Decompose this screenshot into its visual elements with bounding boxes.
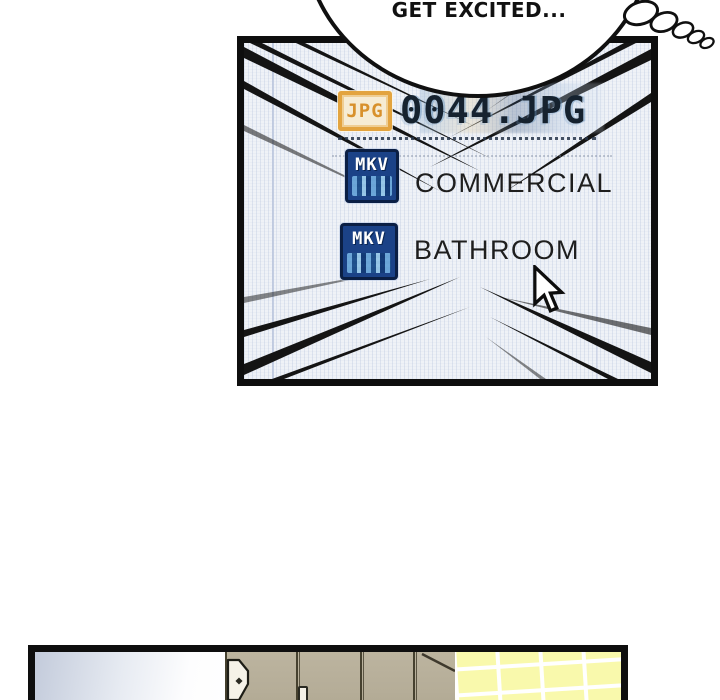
jpg-file-icon: JPG: [338, 91, 392, 131]
mkv-file-icon: MKV: [345, 149, 399, 203]
file-name-label: BATHROOM: [414, 235, 580, 266]
jpg-icon-label: JPG: [346, 100, 383, 122]
mkv-icon-label: MKV: [343, 229, 395, 249]
stall-corner-line: [225, 652, 455, 700]
thought-bubble-trail: [612, 0, 720, 58]
row-separator-dotted: [338, 137, 596, 140]
mkv-icon-thumbnail: [352, 176, 392, 196]
speech-bubble-text: GET EXCITED...: [318, 0, 640, 22]
panel-bathroom-scene: [28, 645, 628, 700]
mkv-icon-label: MKV: [348, 155, 396, 175]
wall-gradient: [35, 652, 225, 700]
mkv-icon-thumbnail: [347, 253, 391, 273]
mouse-cursor-icon: [532, 265, 566, 317]
comic-page: JPG 0044.JPG MKV COMMERCIAL MKV BATHROOM: [0, 0, 720, 700]
mkv-file-icon: MKV: [340, 223, 398, 280]
tile-wall: [455, 652, 621, 700]
file-name-label: COMMERCIAL: [415, 168, 613, 199]
bathroom-stalls: [225, 652, 455, 700]
tile-grid: [455, 652, 621, 700]
